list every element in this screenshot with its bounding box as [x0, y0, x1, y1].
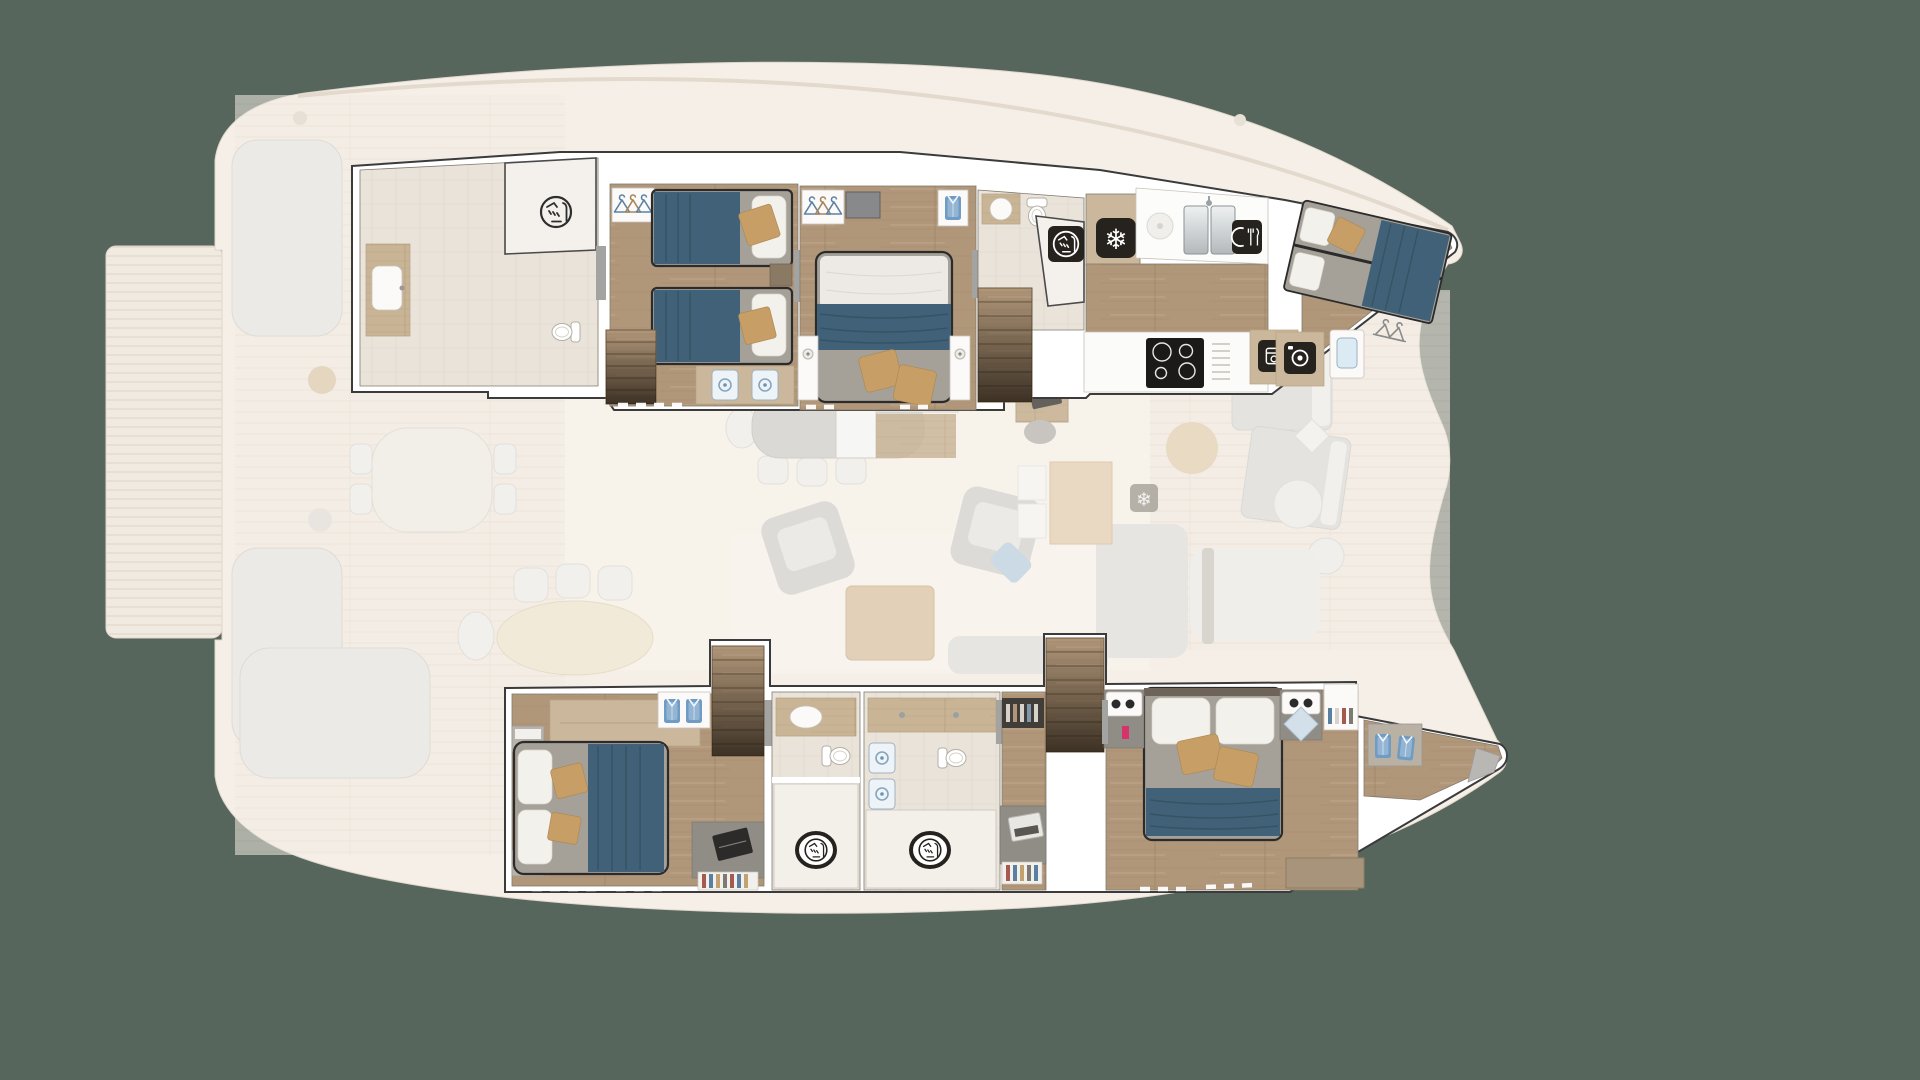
door	[996, 700, 1002, 744]
winch	[293, 111, 307, 125]
floorplan-canvas: ❄ ❄	[0, 0, 1920, 1080]
lamp	[955, 349, 965, 359]
ghost-snowflake-icon: ❄	[1136, 489, 1152, 511]
room-freezer-nook: ❄	[1086, 194, 1140, 266]
between-beds-shelf	[770, 264, 792, 286]
bookshelf-right	[1324, 684, 1358, 730]
galley-up-floor	[876, 414, 956, 458]
basin-2	[869, 779, 895, 809]
corner-sofa	[240, 648, 430, 778]
vip-bed	[1144, 688, 1282, 840]
twin-bed-2	[652, 288, 792, 364]
room-bathroom-a	[772, 692, 860, 890]
tv	[846, 192, 880, 218]
sink	[372, 266, 402, 310]
shirt-icon	[664, 699, 680, 723]
window-dashes	[1206, 885, 1256, 887]
owner-bed	[514, 742, 668, 874]
room-double-cabin-stbd	[1102, 684, 1364, 890]
toilet	[938, 748, 966, 768]
staircase-port	[978, 288, 1032, 402]
round-sink	[990, 198, 1012, 220]
sink	[790, 706, 822, 728]
shirt-icon	[945, 196, 961, 220]
shirt-icon	[1375, 734, 1391, 758]
nightstand-left	[798, 336, 818, 400]
twin-bed-1	[652, 190, 792, 266]
snowflake-icon: ❄	[1104, 223, 1127, 256]
door	[596, 246, 606, 300]
room-bathroom-b	[864, 692, 1002, 890]
door	[1102, 700, 1108, 744]
room-study-nook	[1000, 692, 1046, 890]
toilet	[552, 322, 580, 342]
bookshelf-top	[1002, 698, 1044, 728]
shirt-icon	[1397, 735, 1415, 761]
console-right	[1280, 690, 1322, 741]
mast-post	[1202, 548, 1214, 644]
double-bed	[816, 252, 952, 407]
console-left	[1104, 690, 1144, 748]
winch	[1234, 114, 1246, 126]
stool	[308, 508, 332, 532]
bookshelf	[698, 872, 758, 890]
vanity-band	[868, 698, 996, 732]
staircase-stbd-aft	[712, 646, 764, 756]
room-double-cabin-port	[798, 186, 980, 410]
stern-platform-slats	[106, 246, 222, 638]
lamp	[803, 349, 813, 359]
staircase-twin	[606, 330, 656, 404]
coffee-table	[846, 586, 934, 660]
laundry-basin	[1337, 338, 1357, 368]
induction-cooktop	[1146, 338, 1204, 388]
staircase-stbd-fwd	[1046, 638, 1104, 752]
sideboard	[1286, 858, 1364, 888]
figurine	[1122, 726, 1129, 739]
round-deck-table	[1166, 422, 1218, 474]
cockpit-sofa-port	[232, 140, 342, 336]
basin-1	[712, 370, 738, 400]
nightstand-right	[950, 336, 970, 400]
twin-vanity	[696, 366, 794, 404]
shirt-icon	[686, 699, 702, 723]
laptop	[1008, 812, 1044, 841]
basin-2	[752, 370, 778, 400]
round-lounger-1	[1274, 480, 1322, 528]
shower-icon-ring	[797, 833, 835, 867]
shower-icon-ring	[911, 833, 949, 867]
bookshelf-bottom	[1002, 862, 1042, 884]
side-table	[308, 366, 336, 394]
basin-1	[869, 743, 895, 773]
door	[764, 700, 772, 746]
room-ensuite-aft-port	[360, 158, 606, 386]
toilet	[822, 746, 850, 766]
room-twin-cabin	[606, 184, 802, 406]
nav-chair	[1024, 420, 1056, 444]
